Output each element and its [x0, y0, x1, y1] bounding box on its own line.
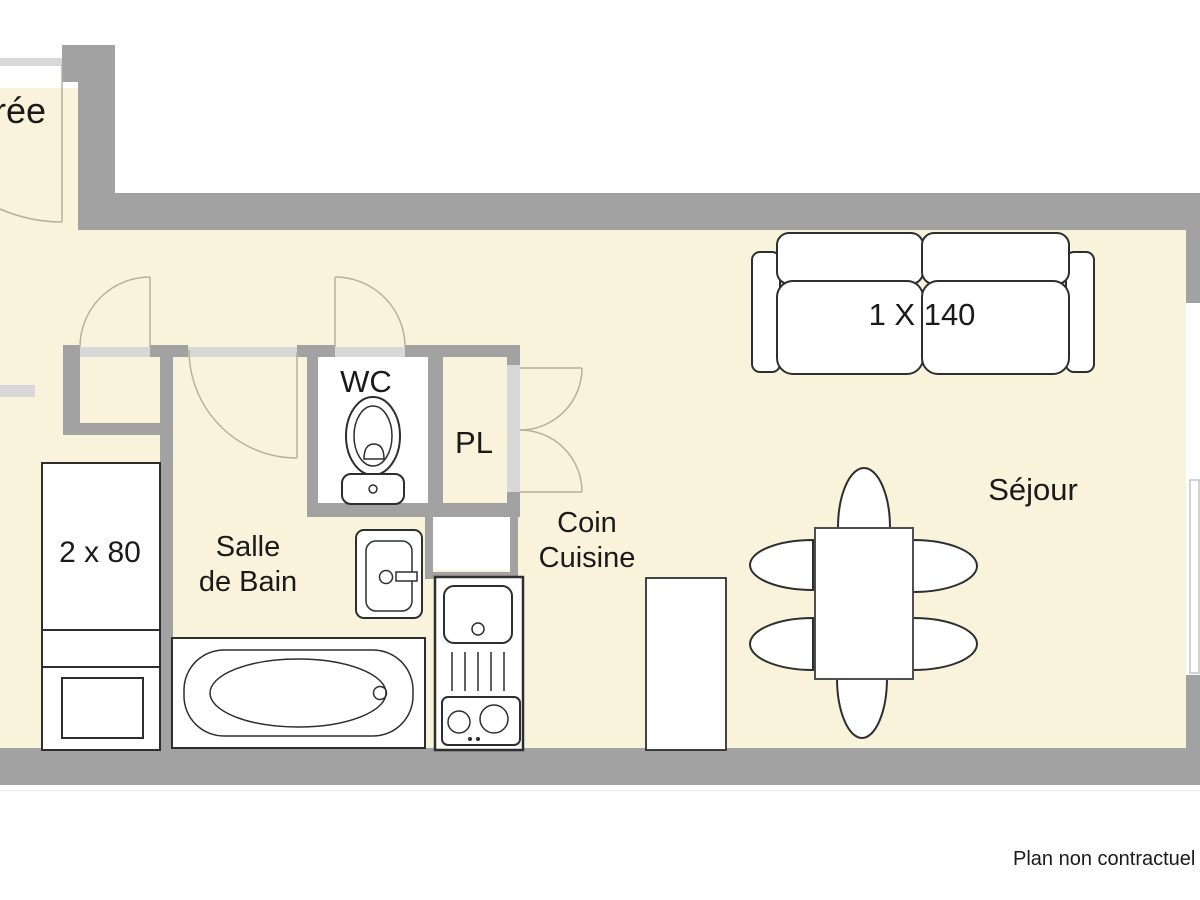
bathroom-label: Salle de Bain — [199, 530, 297, 600]
toilet — [342, 397, 404, 504]
living-room-label: Séjour — [988, 472, 1078, 508]
bathtub — [172, 638, 425, 748]
bed — [42, 463, 160, 750]
disclaimer-text: Plan non contractuel — [1013, 848, 1195, 871]
page-divider — [0, 790, 1200, 791]
floor-plan: rée 2 x 80 Salle de Bain WC PL Coin Cuis… — [0, 0, 1200, 900]
kitchen-label-line1: Coin — [539, 506, 636, 541]
entry-label: rée — [0, 90, 46, 132]
wc-label: WC — [340, 364, 392, 400]
washbasin — [356, 530, 422, 618]
bathroom-label-line1: Salle — [199, 530, 297, 565]
fridge — [646, 578, 726, 750]
closet-label: PL — [455, 425, 493, 461]
dining-table — [815, 528, 913, 679]
kitchen-label-line2: Cuisine — [539, 541, 636, 576]
window — [1190, 480, 1199, 673]
door-swing — [0, 65, 582, 492]
plan-symbols — [0, 0, 1200, 900]
kitchenette — [435, 577, 523, 750]
bed-size-label: 2 x 80 — [59, 536, 141, 570]
sofa-size-label: 1 X 140 — [869, 297, 976, 333]
kitchen-label: Coin Cuisine — [539, 506, 636, 576]
bathroom-label-line2: de Bain — [199, 565, 297, 600]
